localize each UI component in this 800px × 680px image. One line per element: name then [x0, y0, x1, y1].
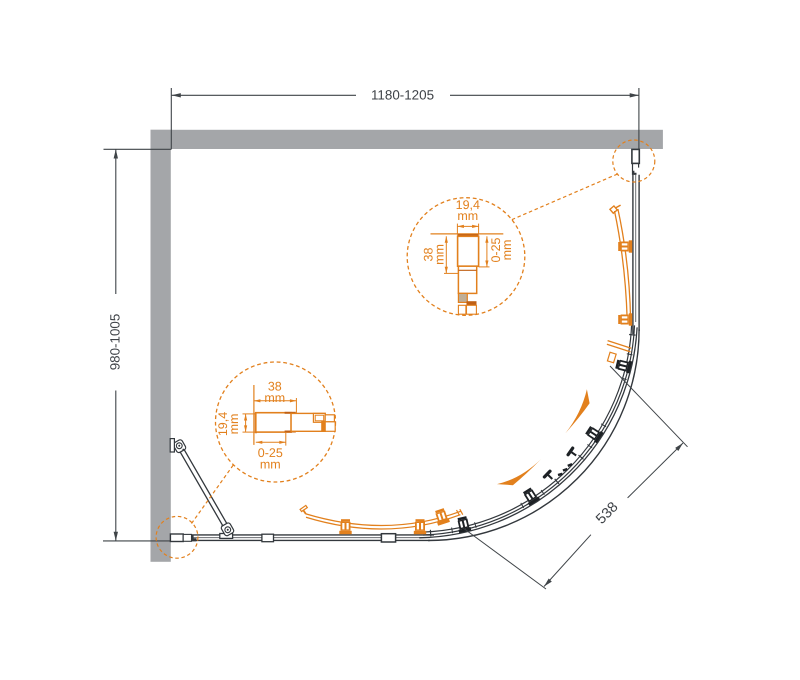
svg-text:mm: mm: [500, 240, 514, 261]
svg-text:mm: mm: [227, 414, 241, 435]
svg-text:mm: mm: [457, 209, 478, 223]
svg-text:1180-1205: 1180-1205: [371, 88, 434, 103]
svg-text:980-1005: 980-1005: [107, 314, 122, 371]
svg-text:mm: mm: [260, 458, 281, 472]
svg-text:mm: mm: [264, 391, 285, 405]
svg-text:mm: mm: [433, 244, 447, 265]
